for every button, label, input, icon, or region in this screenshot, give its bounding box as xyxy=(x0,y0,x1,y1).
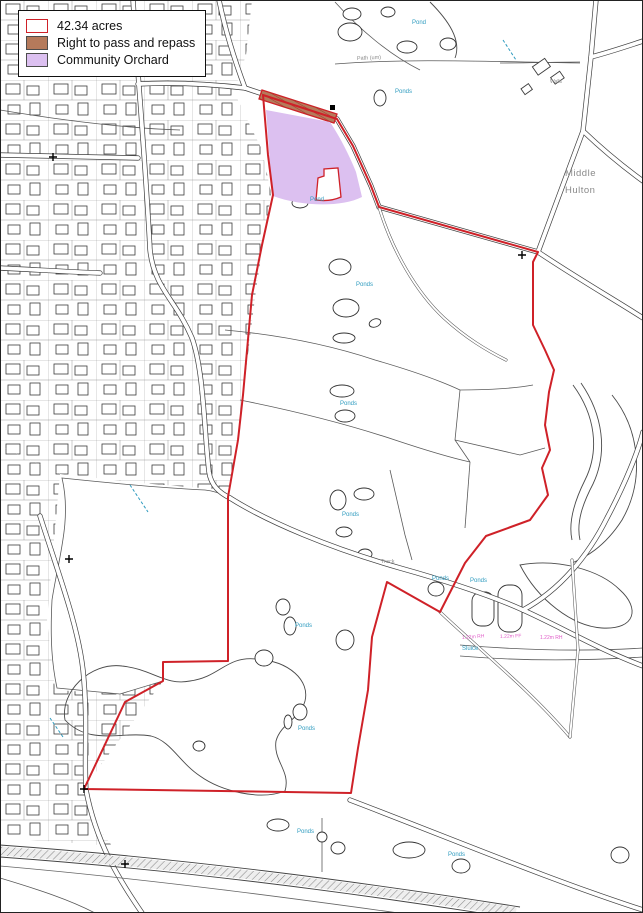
pond xyxy=(338,23,362,41)
pond xyxy=(343,8,361,20)
pond xyxy=(611,847,629,863)
site-plan-map: Middle Hulton Walls Path (um) Track Pond… xyxy=(0,0,643,913)
pond xyxy=(393,842,425,858)
pond-label: Ponds xyxy=(395,89,412,95)
place-label-walls: Walls xyxy=(550,79,563,85)
pond xyxy=(452,859,470,873)
legend-label-right-of-way: Right to pass and repass xyxy=(57,36,195,50)
pond xyxy=(333,333,355,343)
pond-label: Pond xyxy=(412,20,426,26)
pond xyxy=(331,842,345,854)
legend-label-site-area: 42.34 acres xyxy=(57,19,122,33)
legend-item-site-area: 42.34 acres xyxy=(26,19,195,33)
pond xyxy=(336,527,352,537)
pond xyxy=(293,704,307,720)
pond-label: Ponds xyxy=(298,726,315,732)
path-label: Path (um) xyxy=(357,55,382,62)
map-legend: 42.34 acres Right to pass and repass Com… xyxy=(18,10,206,77)
pond xyxy=(276,599,290,615)
pond-label: Ponds xyxy=(448,852,465,858)
boundary-annotation: 1.22m RH xyxy=(540,635,563,641)
right-of-way-swatch xyxy=(26,36,48,50)
track-label: Track xyxy=(381,559,395,565)
legend-label-community-orchard: Community Orchard xyxy=(57,53,169,67)
pond xyxy=(381,7,395,17)
map-page: { "legend": { "items": [ {"label": "42.3… xyxy=(0,0,643,913)
pond xyxy=(440,38,456,50)
pond xyxy=(333,299,359,317)
pond-label: Ponds xyxy=(295,623,312,629)
pond xyxy=(335,410,355,422)
pond xyxy=(397,41,417,53)
sluice-label: Sluice xyxy=(462,646,479,652)
pond-label: Ponds xyxy=(297,829,314,835)
pond-label: Ponds xyxy=(340,401,357,407)
pond xyxy=(330,385,354,397)
pond xyxy=(330,490,346,510)
legend-item-community-orchard: Community Orchard xyxy=(26,53,195,67)
pond-label: Pond xyxy=(310,197,324,203)
pond xyxy=(255,650,273,666)
pond-label: Ponds xyxy=(432,576,449,582)
pond-label: Ponds xyxy=(356,282,373,288)
place-label-middle: Middle xyxy=(565,168,596,179)
legend-item-right-of-way: Right to pass and repass xyxy=(26,36,195,50)
pond xyxy=(329,259,351,275)
pond xyxy=(284,715,292,729)
pond-label: Ponds xyxy=(470,578,487,584)
pond xyxy=(374,90,386,106)
pond xyxy=(193,741,205,751)
pond xyxy=(336,630,354,650)
pond xyxy=(428,582,444,596)
pond xyxy=(354,488,374,500)
place-label-hulton: Hulton xyxy=(565,185,595,196)
pond xyxy=(267,819,289,831)
pond xyxy=(317,832,327,842)
community-orchard-swatch xyxy=(26,53,48,67)
pond-label: Ponds xyxy=(342,512,359,518)
site-boundary-swatch xyxy=(26,19,48,33)
boundary-annotation: 1.22m FF xyxy=(500,633,522,640)
